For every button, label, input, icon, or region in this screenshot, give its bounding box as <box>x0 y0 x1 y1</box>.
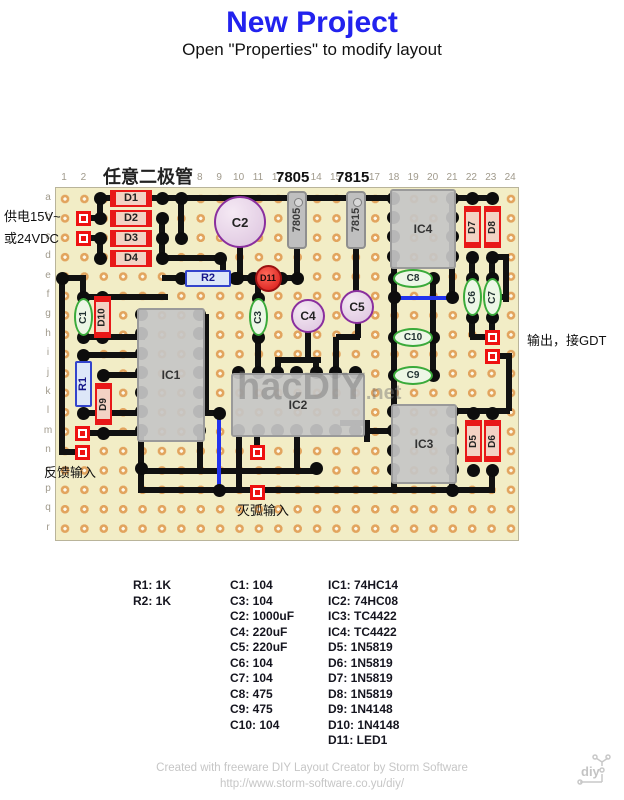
junction-dot <box>97 427 110 440</box>
component-C3[interactable]: C3 <box>249 298 268 336</box>
parts-list-item: C3: 104 <box>230 594 294 610</box>
note-arc-input: 灭弧输入 <box>237 500 289 519</box>
component-label: C9 <box>407 370 420 381</box>
component-label: IC1 <box>162 368 181 382</box>
diy-logo-icon: diy <box>576 752 614 790</box>
column-label: 1 <box>58 172 70 183</box>
component-label: D10 <box>97 308 108 326</box>
jumper-wire[interactable] <box>394 296 452 300</box>
parts-list-item: C1: 104 <box>230 578 294 594</box>
trace-wire[interactable] <box>236 433 242 490</box>
component-label: IC4 <box>414 222 433 236</box>
component-7805[interactable]: 7805 <box>287 191 307 249</box>
component-C2[interactable]: C2 <box>214 196 266 248</box>
component-D7[interactable]: D7 <box>464 206 481 248</box>
component-label: D2 <box>124 212 138 224</box>
row-label: e <box>43 270 53 281</box>
component-IC4[interactable]: IC4 <box>390 189 456 269</box>
jumper-wire[interactable] <box>217 411 221 493</box>
component-label: C5 <box>349 300 364 314</box>
layout-canvas: New Project Open "Properties" to modify … <box>0 0 624 800</box>
junction-dot <box>466 251 479 264</box>
column-label: 17 <box>368 172 380 183</box>
parts-list-item: R2: 1K <box>133 594 171 610</box>
component-label: D3 <box>124 232 138 244</box>
row-label: g <box>43 308 53 319</box>
row-label: p <box>43 483 53 494</box>
row-label: l <box>43 405 53 416</box>
row-label: r <box>43 522 53 533</box>
component-D4[interactable]: D4 <box>110 250 152 267</box>
note-feedback: 反馈输入 <box>44 462 96 481</box>
junction-dot <box>231 272 244 285</box>
junction-dot <box>213 407 226 420</box>
component-D5[interactable]: D5 <box>465 420 482 462</box>
solder-pad[interactable] <box>250 485 265 500</box>
parts-list-item: D7: 1N5819 <box>328 671 399 687</box>
note-supply-1: 供电15V~ <box>4 206 61 225</box>
trace-wire[interactable] <box>506 353 512 411</box>
component-IC2[interactable]: IC2 <box>231 373 365 437</box>
column-label: 14 <box>310 172 322 183</box>
component-D1[interactable]: D1 <box>110 190 152 207</box>
component-IC3[interactable]: IC3 <box>391 404 457 484</box>
column-label: 8 <box>194 172 206 183</box>
parts-list-item: D9: 1N4148 <box>328 702 399 718</box>
parts-list-item: IC2: 74HC08 <box>328 594 399 610</box>
column-label: 11 <box>252 172 264 183</box>
parts-list-item: R1: 1K <box>133 578 171 594</box>
parts-list-item: C5: 220uF <box>230 640 294 656</box>
component-label: C3 <box>252 311 263 324</box>
parts-list-item: C8: 475 <box>230 687 294 703</box>
junction-dot <box>214 252 227 265</box>
junction-dot <box>446 291 459 304</box>
junction-dot <box>486 192 499 205</box>
row-label: k <box>43 386 53 397</box>
junction-dot <box>77 349 90 362</box>
component-label: 7815 <box>350 208 362 232</box>
component-label: C8 <box>407 273 420 284</box>
parts-list-item: IC3: TC4422 <box>328 609 399 625</box>
solder-pad[interactable] <box>76 211 91 226</box>
parts-list-item: IC4: TC4422 <box>328 625 399 641</box>
component-C5[interactable]: C5 <box>340 290 374 324</box>
junction-dot <box>94 192 107 205</box>
junction-dot <box>175 192 188 205</box>
parts-list-item: C2: 1000uF <box>230 609 294 625</box>
parts-list-item: D8: 1N5819 <box>328 687 399 703</box>
header-7805: 7805 <box>276 169 309 186</box>
component-label: C4 <box>300 309 315 323</box>
trace-wire[interactable] <box>141 468 319 474</box>
column-label: 22 <box>465 172 477 183</box>
trace-wire[interactable] <box>430 276 436 379</box>
junction-dot <box>446 484 459 497</box>
parts-list-col-r: R1: 1KR2: 1K <box>133 578 171 609</box>
parts-list-item: C6: 104 <box>230 656 294 672</box>
component-C1[interactable]: C1 <box>74 298 93 336</box>
component-R2[interactable]: R2 <box>185 270 231 287</box>
junction-dot <box>466 192 479 205</box>
mounting-hole <box>294 198 303 207</box>
junction-dot <box>156 252 169 265</box>
component-C8[interactable]: C8 <box>393 269 433 288</box>
header-7815: 7815 <box>336 169 369 186</box>
component-label: R1 <box>77 377 89 391</box>
junction-dot <box>467 407 480 420</box>
component-label: C10 <box>404 332 422 343</box>
column-label: 24 <box>504 172 516 183</box>
solder-pad[interactable] <box>485 349 500 364</box>
junction-dot <box>213 484 226 497</box>
solder-pad[interactable] <box>75 445 90 460</box>
junction-dot <box>94 252 107 265</box>
column-label: 9 <box>213 172 225 183</box>
junction-dot <box>97 369 110 382</box>
component-D6[interactable]: D6 <box>484 420 501 462</box>
junction-dot <box>94 232 107 245</box>
column-label: 21 <box>446 172 458 183</box>
row-label: j <box>43 367 53 378</box>
component-C4[interactable]: C4 <box>291 299 325 333</box>
junction-dot <box>56 272 69 285</box>
component-D8[interactable]: D8 <box>484 206 501 248</box>
row-label: n <box>43 444 53 455</box>
junction-dot <box>486 251 499 264</box>
solder-pad[interactable] <box>250 445 265 460</box>
solder-pad[interactable] <box>485 330 500 345</box>
component-label: D7 <box>466 221 477 234</box>
parts-list-item: D11: LED1 <box>328 733 399 749</box>
component-label: D9 <box>97 398 108 411</box>
junction-dot <box>486 464 499 477</box>
junction-dot <box>156 212 169 225</box>
row-label: i <box>43 347 53 358</box>
parts-list-item: C10: 104 <box>230 718 294 734</box>
junction-dot <box>486 407 499 420</box>
component-C9[interactable]: C9 <box>393 366 433 385</box>
solder-pad[interactable] <box>76 231 91 246</box>
component-label: D5 <box>467 435 478 448</box>
parts-list-col-ic: IC1: 74HC14IC2: 74HC08IC3: TC4422IC4: TC… <box>328 578 399 749</box>
solder-pad[interactable] <box>75 426 90 441</box>
column-label: 10 <box>233 172 245 183</box>
component-label: C6 <box>466 291 477 304</box>
component-D11[interactable]: D11 <box>255 265 282 292</box>
column-label: 2 <box>77 172 89 183</box>
component-C7[interactable]: C7 <box>483 278 502 316</box>
component-label: C1 <box>77 311 88 324</box>
junction-dot <box>156 192 169 205</box>
component-D3[interactable]: D3 <box>110 230 152 247</box>
junction-dot <box>310 462 323 475</box>
trace-wire[interactable] <box>138 487 495 493</box>
row-label: a <box>43 192 53 203</box>
component-label: IC2 <box>289 398 308 412</box>
page-subtitle: Open "Properties" to modify layout <box>0 40 624 60</box>
parts-list-item: C9: 475 <box>230 702 294 718</box>
component-label: 7805 <box>291 208 303 232</box>
page-title: New Project <box>0 6 624 40</box>
trace-wire[interactable] <box>59 278 65 455</box>
component-label: IC3 <box>415 437 434 451</box>
component-R1[interactable]: R1 <box>75 361 92 407</box>
note-output: 输出，接GDT <box>527 330 606 349</box>
row-label: h <box>43 328 53 339</box>
column-label: 19 <box>407 172 419 183</box>
component-label: D6 <box>486 435 497 448</box>
component-label: C2 <box>232 215 249 230</box>
junction-dot <box>77 407 90 420</box>
note-any-diode: 任意二极管 <box>103 163 193 189</box>
note-supply-2: 或24VDC <box>4 228 59 247</box>
footer-url: http://www.storm-software.co.yu/diy/ <box>0 778 624 790</box>
junction-dot <box>156 232 169 245</box>
junction-dot <box>388 291 401 304</box>
parts-list-item: C7: 104 <box>230 671 294 687</box>
parts-list-item: C4: 220uF <box>230 625 294 641</box>
component-label: D8 <box>486 221 497 234</box>
component-label: C7 <box>486 291 497 304</box>
parts-list-item: IC1: 74HC14 <box>328 578 399 594</box>
component-label: D4 <box>124 252 138 264</box>
trace-wire[interactable] <box>294 433 300 470</box>
component-7815[interactable]: 7815 <box>346 191 366 249</box>
junction-dot <box>94 212 107 225</box>
row-label: f <box>43 289 53 300</box>
junction-dot <box>467 464 480 477</box>
component-D10[interactable]: D10 <box>94 296 111 338</box>
component-label: D11 <box>260 273 276 283</box>
junction-dot <box>175 232 188 245</box>
trace-wire[interactable] <box>305 330 311 362</box>
trace-wire[interactable] <box>503 254 509 302</box>
junction-dot <box>135 462 148 475</box>
column-label: 23 <box>485 172 497 183</box>
trace-wire[interactable] <box>452 408 510 414</box>
row-label: d <box>43 250 53 261</box>
component-label: R2 <box>201 272 215 284</box>
mounting-hole <box>353 198 362 207</box>
component-D2[interactable]: D2 <box>110 210 152 227</box>
component-IC1[interactable]: IC1 <box>137 308 205 442</box>
row-label: q <box>43 502 53 513</box>
column-label: 20 <box>427 172 439 183</box>
junction-dot <box>291 272 304 285</box>
parts-list-col-c: C1: 104C3: 104C2: 1000uFC4: 220uFC5: 220… <box>230 578 294 733</box>
parts-list-item: D10: 1N4148 <box>328 718 399 734</box>
footer-credit: Created with freeware DIY Layout Creator… <box>0 762 624 774</box>
parts-list-item: D6: 1N5819 <box>328 656 399 672</box>
component-C10[interactable]: C10 <box>393 328 433 347</box>
component-C6[interactable]: C6 <box>463 278 482 316</box>
parts-list-item: D5: 1N5819 <box>328 640 399 656</box>
svg-text:diy: diy <box>581 764 601 779</box>
component-D9[interactable]: D9 <box>95 383 112 425</box>
row-label: m <box>43 425 53 436</box>
component-label: D1 <box>124 192 138 204</box>
column-label: 18 <box>388 172 400 183</box>
